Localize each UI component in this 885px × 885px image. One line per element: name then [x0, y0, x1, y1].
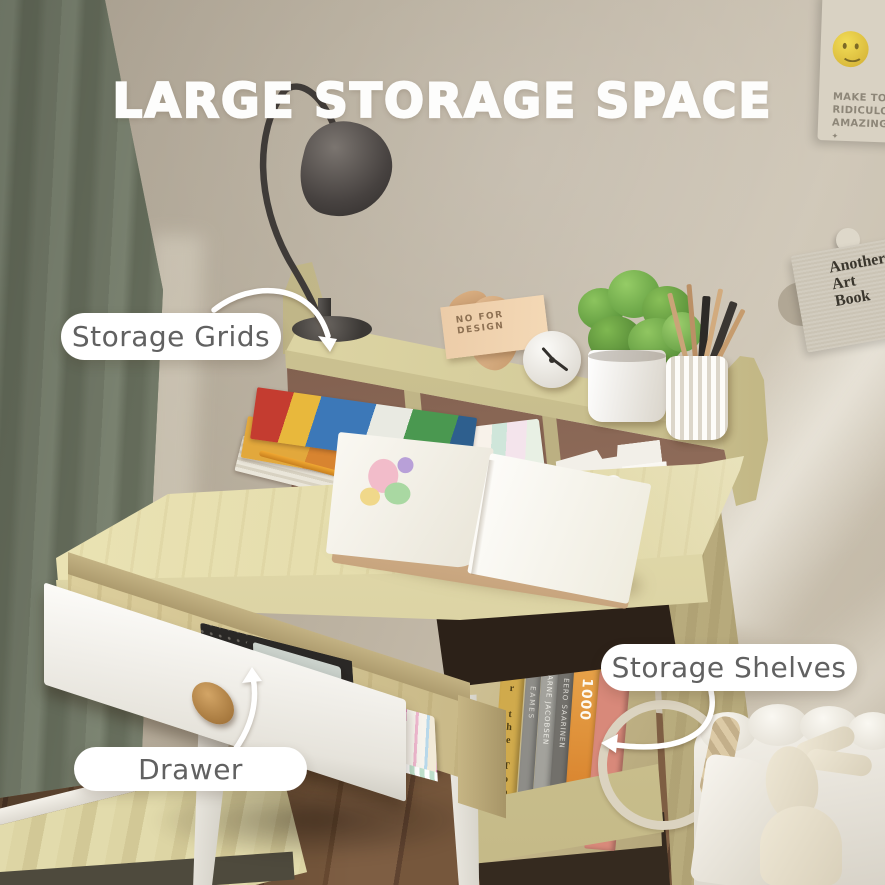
- lamp-base: [292, 316, 372, 342]
- page-title: LARGE STORAGE SPACE: [0, 74, 885, 129]
- pencil-cup: [666, 356, 728, 440]
- product-marketing-image: MAKE TODAY RIDICULOUSLY AMAZING ✦ Anothe…: [0, 0, 885, 885]
- callout-drawer: Drawer: [74, 747, 307, 791]
- basket-ruffle: [748, 704, 808, 746]
- plant-pot: [588, 350, 666, 422]
- desk-clock: [523, 331, 581, 388]
- callout-storage-grids: Storage Grids: [61, 313, 281, 360]
- callout-storage-shelves: Storage Shelves: [601, 644, 857, 691]
- bunny-plush-body: [760, 806, 842, 885]
